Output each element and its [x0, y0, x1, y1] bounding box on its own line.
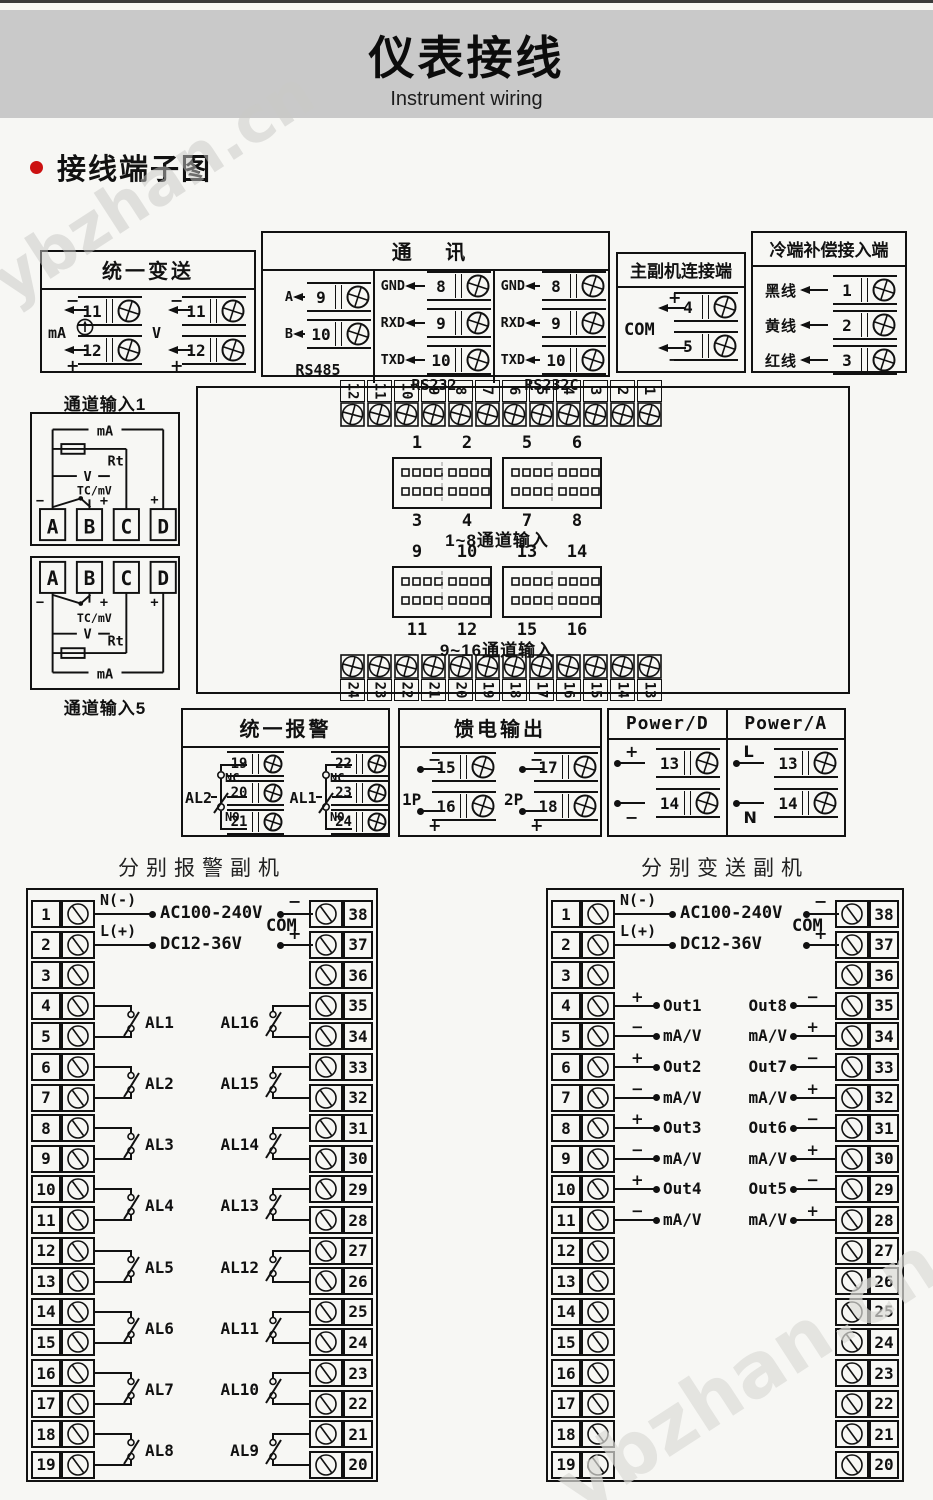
power-sign: − [625, 808, 638, 827]
plus-sign: + [806, 1018, 819, 1036]
terminal-number: 4 [551, 992, 581, 1020]
terminal-number: 3 [583, 380, 608, 402]
terminal-divider [252, 754, 259, 774]
feed-output-group: 1P − + 1516 [410, 752, 496, 840]
plus-sign: + [631, 988, 644, 1006]
signal-row: GND8 [375, 271, 493, 301]
arrow-left-icon [407, 285, 425, 287]
screw-icon [61, 1359, 95, 1387]
terminal-number: 25 [869, 1298, 899, 1326]
channel-terminal-letter: B [84, 567, 96, 590]
terminal: 18 [534, 791, 598, 821]
terminal-number: 21 [343, 1420, 373, 1448]
signal-label: TXD [495, 352, 525, 368]
socket-pins [504, 568, 600, 616]
screw-icon [581, 1053, 615, 1081]
terminal: 10 [551, 1175, 615, 1203]
alarm-label: AL6 [145, 1319, 174, 1338]
terminal: 14 [31, 1298, 95, 1326]
screw-icon [713, 334, 737, 358]
terminal: 35 [835, 992, 899, 1020]
signal-label: B [263, 326, 293, 342]
terminal-number: 3 [551, 961, 581, 989]
line-label: L(+) [100, 922, 136, 940]
wire [615, 1035, 655, 1037]
alarm-contact-pair: AL14 [179, 1114, 309, 1176]
screw-icon [61, 1084, 95, 1112]
screw-icon [581, 1359, 615, 1387]
tc-label: TC/mV [77, 611, 112, 625]
terminal: 17 [534, 752, 598, 782]
terminal-number: 10 [394, 380, 419, 402]
wire [795, 1219, 835, 1221]
top-border-line [0, 0, 933, 3]
socket-channel-number: 10 [452, 542, 482, 562]
power-sign: L [744, 742, 754, 761]
page-subtitle: Instrument wiring [0, 88, 933, 111]
terminal-number: 2 [610, 380, 635, 402]
terminal: 16 [556, 654, 581, 701]
terminal: 19 [227, 751, 284, 777]
terminal: 16 [551, 1359, 615, 1387]
terminal: 12 [340, 380, 365, 427]
terminal-number: 27 [343, 1237, 373, 1265]
screw-icon [872, 313, 896, 337]
terminal-number: 2 [837, 316, 857, 335]
plus-sign: + [100, 493, 108, 509]
terminal-number: 5 [551, 1022, 581, 1050]
terminal-divider [570, 348, 577, 372]
terminal-number: 13 [778, 754, 798, 773]
alarm-contact-pair: AL11 [179, 1298, 309, 1360]
screw-icon [61, 1053, 95, 1081]
wire [619, 802, 645, 804]
terminal-number: 33 [869, 1053, 899, 1081]
output-sub-label: mA/V [663, 1210, 702, 1229]
feed-output-block: 馈电输出 1P − + 1516 2P − + 1718 [398, 708, 602, 837]
terminal: 5 [551, 1022, 615, 1050]
block-title: 主副机连接端 [618, 254, 744, 288]
terminal: 27 [309, 1237, 373, 1265]
minus-sign: − [806, 1171, 819, 1189]
terminal-number: 1 [31, 900, 61, 928]
terminal-number: 14 [610, 679, 635, 701]
screw-icon [573, 755, 597, 779]
terminal: 21 [421, 654, 446, 701]
terminal-number: 8 [551, 1114, 581, 1142]
block-body: 1P − + 1516 2P − + 1718 [400, 748, 600, 840]
terminal: 1 [833, 275, 897, 305]
alarm-label: AL14 [220, 1135, 259, 1154]
terminal: 8 [31, 1114, 95, 1142]
screw-icon [61, 1390, 95, 1418]
screw-icon [61, 992, 95, 1020]
terminal: 7 [551, 1084, 615, 1112]
output-row: − Out8 [705, 992, 835, 1020]
unified-transmit-block: 统一变送 − mA + 1112 − V + 1112 [40, 250, 256, 373]
signal-label: RXD [375, 315, 405, 331]
terminal: 11 [78, 296, 142, 326]
terminal-number: 7 [31, 1084, 61, 1112]
terminal: 1 [551, 900, 615, 928]
screw-icon [529, 402, 554, 427]
terminal-number: 17 [31, 1390, 61, 1418]
terminal-number: 29 [869, 1175, 899, 1203]
terminal-number: 22 [869, 1390, 899, 1418]
output-row: + mA/V [705, 1145, 835, 1173]
com-label: COM [624, 320, 655, 340]
terminal-number: 1 [637, 380, 662, 402]
terminal-number: 13 [660, 754, 680, 773]
terminal-divider [684, 751, 691, 775]
channel-terminal-letter: D [157, 515, 169, 538]
terminal-number: 10 [546, 351, 566, 370]
alarm-label: AL5 [145, 1258, 174, 1277]
terminal-number: 36 [343, 961, 373, 989]
terminal-number: 6 [502, 380, 527, 402]
supply-rating: AC100-240V [680, 903, 782, 923]
screw-icon [835, 1237, 869, 1265]
terminal-number: 14 [778, 794, 798, 813]
terminal-divider [455, 348, 462, 372]
screw-icon [309, 1328, 343, 1356]
alarm-relay-group: AL1 NC NO 222324 [294, 751, 389, 843]
terminal-number: 3 [31, 961, 61, 989]
block-body: Power/D + − 1314 Power/A L N 1314 [609, 710, 844, 835]
screw-icon [61, 1237, 95, 1265]
terminal: 20 [227, 780, 284, 806]
minus-sign: − [814, 892, 827, 911]
output-row: + mA/V [705, 1084, 835, 1112]
terminal: 2 [610, 380, 635, 427]
terminal-number: 19 [31, 1451, 61, 1479]
screw-icon [581, 900, 615, 928]
terminal: 4 [674, 292, 738, 322]
terminal-number: 7 [475, 380, 500, 402]
screw-icon [835, 1359, 869, 1387]
terminal: 12 [31, 1237, 95, 1265]
terminal-number: 22 [335, 756, 352, 772]
wire [615, 913, 671, 915]
terminal-number: 19 [475, 679, 500, 701]
terminal-number: 33 [343, 1053, 373, 1081]
terminal-number: 4 [556, 380, 581, 402]
line-label: L(+) [620, 922, 656, 940]
terminal: 11 [31, 1206, 95, 1234]
terminal-number: 16 [436, 797, 456, 816]
terminal-number: 18 [538, 797, 558, 816]
terminal: 8 [551, 1114, 615, 1142]
supply-rating: DC12-36V [160, 934, 242, 954]
screw-icon [221, 338, 245, 362]
terminal-divider [335, 285, 342, 309]
terminal-number: 2 [31, 931, 61, 959]
plus-sign: + [100, 595, 108, 611]
terminal: 19 [551, 1451, 615, 1479]
alarm-label: AL3 [145, 1135, 174, 1154]
main-terminal-block: 12 11 10 9 8 7 6 5 4 3 2 1 24 23 22 21 2… [196, 386, 850, 694]
screw-icon [581, 1298, 615, 1326]
screw-icon [835, 1267, 869, 1295]
arrow-left-icon [407, 359, 425, 361]
screw-icon [61, 1175, 95, 1203]
terminal-number: 23 [343, 1359, 373, 1387]
terminal: 5 [31, 1022, 95, 1050]
screw-icon [61, 1206, 95, 1234]
terminal: 9 [421, 380, 446, 427]
terminal: 10 [394, 380, 419, 427]
terminal: 27 [835, 1237, 899, 1265]
signal-label: TXD [375, 352, 405, 368]
signal-row: RXD9 [375, 308, 493, 338]
terminal: 35 [309, 992, 373, 1020]
screw-icon [367, 754, 387, 774]
terminal-number: 21 [421, 679, 446, 701]
terminal: 28 [309, 1206, 373, 1234]
screw-icon [835, 961, 869, 989]
alarm-label: AL2 [145, 1074, 174, 1093]
screw-icon [835, 1175, 869, 1203]
wire [738, 802, 764, 804]
output-sub-label: mA/V [748, 1088, 787, 1107]
wire [795, 1005, 835, 1007]
alarm-contact-pair: AL13 [179, 1175, 309, 1237]
screw-icon [610, 654, 635, 679]
power-body: + − 1314 [609, 740, 726, 835]
socket-group-caption: 9~16通道输入 [397, 636, 597, 661]
terminal: 8 [427, 271, 491, 301]
terminal: 38 [309, 900, 373, 928]
terminal: 11 [367, 380, 392, 427]
terminal-divider [861, 278, 868, 302]
section-title: 接线端子图 [57, 146, 212, 188]
channel-terminal-letter: A [47, 515, 59, 538]
terminal: 21 [835, 1420, 899, 1448]
terminal-divider [562, 794, 569, 818]
output-type-label: mA [48, 324, 66, 342]
terminal-number: 9 [311, 288, 331, 307]
terminal-number: 15 [551, 1328, 581, 1356]
channel-terminal-letter: D [157, 567, 169, 590]
terminal: 10 [307, 319, 371, 349]
screw-icon [835, 1420, 869, 1448]
transmit-slave-block: 1234567891011121314151617181938373635343… [546, 888, 904, 1482]
terminal-divider [562, 755, 569, 779]
terminal: 15 [432, 752, 496, 782]
screw-icon [475, 402, 500, 427]
plus-sign: + [814, 924, 827, 943]
terminal-number: 10 [311, 325, 331, 344]
terminal: 19 [475, 654, 500, 701]
screw-icon [583, 402, 608, 427]
terminal: 24 [331, 809, 388, 835]
terminal: 18 [31, 1420, 95, 1448]
terminal-number: 12 [551, 1237, 581, 1265]
terminal-number: 28 [343, 1206, 373, 1234]
screw-icon [556, 402, 581, 427]
terminal: 34 [835, 1022, 899, 1050]
terminal: 14 [551, 1298, 615, 1326]
socket-channel-number: 6 [562, 433, 592, 453]
screw-icon [61, 1451, 95, 1479]
terminal: 23 [309, 1359, 373, 1387]
terminal: 6 [502, 380, 527, 427]
screw-icon [309, 961, 343, 989]
plus-sign: + [631, 1049, 644, 1067]
transmit-output-group: − V + 1112 [156, 296, 246, 374]
output-label: Out4 [663, 1179, 702, 1198]
terminal-number: 18 [551, 1420, 581, 1448]
terminal-number: 12 [82, 341, 102, 360]
terminal-number: 38 [869, 900, 899, 928]
terminal-number: 11 [82, 302, 102, 321]
block-title: 冷端补偿接入端 [753, 233, 905, 267]
terminal-number: 22 [343, 1390, 373, 1418]
screw-icon [346, 285, 370, 309]
screw-icon [581, 992, 615, 1020]
terminal: 23 [367, 654, 392, 701]
screw-icon [309, 1145, 343, 1173]
signal-label: RXD [495, 315, 525, 331]
signal-row: TXD10 [375, 345, 493, 375]
alarm-slave-title: 分别报警副机 [26, 852, 378, 882]
wire [615, 1005, 655, 1007]
terminal-number: 8 [31, 1114, 61, 1142]
terminal: 11 [551, 1206, 615, 1234]
output-sub-label: mA/V [663, 1026, 702, 1045]
socket-channel-number: 13 [512, 542, 542, 562]
terminal: 14 [774, 788, 838, 818]
screw-icon [61, 1328, 95, 1356]
wire-color-label: 黑线 [761, 280, 797, 301]
screw-icon [581, 1114, 615, 1142]
screw-icon [581, 274, 605, 298]
section-heading: 接线端子图 [30, 146, 212, 188]
supply-rating: AC100-240V [160, 903, 262, 923]
terminal-divider [455, 311, 462, 335]
terminal: 13 [551, 1267, 615, 1295]
arrow-left-icon [802, 324, 828, 326]
terminal-number: 8 [431, 277, 451, 296]
power-title: Power/D [609, 710, 726, 740]
socket-pins [504, 459, 600, 507]
terminal-number: 1 [837, 281, 857, 300]
feed-group-label: 1P [402, 790, 421, 809]
terminal-number: 7 [551, 1084, 581, 1112]
terminal: 9 [551, 1145, 615, 1173]
terminal-number: 26 [343, 1267, 373, 1295]
screw-icon [872, 278, 896, 302]
terminal: 29 [835, 1175, 899, 1203]
neutral-label: N(-) [620, 891, 656, 909]
terminal-number: 13 [31, 1267, 61, 1295]
terminal: 31 [835, 1114, 899, 1142]
screw-icon [835, 1114, 869, 1142]
alarm-label: AL9 [230, 1441, 259, 1460]
screw-icon [309, 1390, 343, 1418]
alarm-relay-group: AL2 NC NO 192021 [189, 751, 284, 843]
terminal-number: 9 [31, 1145, 61, 1173]
screw-icon [61, 1114, 95, 1142]
terminal-number: 30 [869, 1145, 899, 1173]
terminal-divider [106, 299, 113, 323]
v-label: V [83, 469, 91, 485]
output-sub-label: mA/V [748, 1210, 787, 1229]
terminal-divider [335, 322, 342, 346]
terminal: 2 [31, 931, 95, 959]
terminal-divider [460, 755, 467, 779]
terminal: 9 [31, 1145, 95, 1173]
output-label: Out7 [748, 1057, 787, 1076]
socket-channel-number: 5 [512, 433, 542, 453]
terminal-number: 16 [556, 679, 581, 701]
channel-wiring-drawing: ABCD mA Rt V TC/mV − + + [32, 558, 178, 688]
terminal: 6 [31, 1053, 95, 1081]
terminal-number: 19 [231, 756, 248, 772]
terminal: 16 [432, 791, 496, 821]
screw-icon [581, 931, 615, 959]
wire [808, 944, 839, 946]
plus-sign: + [150, 492, 158, 508]
terminal: 13 [637, 654, 662, 701]
channel-terminal-letter: B [84, 515, 96, 538]
terminal-number: 10 [551, 1175, 581, 1203]
wire [808, 913, 839, 915]
alarm-label: AL12 [220, 1258, 259, 1277]
terminal: 9 [427, 308, 491, 338]
terminal: 3 [833, 345, 897, 375]
terminal: 1 [637, 380, 662, 427]
terminal-number: 38 [343, 900, 373, 928]
plus-sign: + [150, 595, 158, 611]
terminal-divider [570, 274, 577, 298]
terminal-number: 5 [678, 337, 698, 356]
terminal: 19 [31, 1451, 95, 1479]
screw-icon [835, 931, 869, 959]
wire-row: 红线3 [761, 345, 897, 375]
arrow-left-icon [407, 322, 425, 324]
screw-icon [61, 1267, 95, 1295]
alarm-label: AL11 [220, 1319, 259, 1338]
terminal-number: 25 [343, 1298, 373, 1326]
terminal-number: 37 [869, 931, 899, 959]
terminal-number: 23 [367, 679, 392, 701]
terminal: 22 [835, 1390, 899, 1418]
terminal-number: 23 [335, 785, 352, 801]
terminal-number: 18 [502, 679, 527, 701]
minus-sign: − [631, 1080, 644, 1098]
power-body: L N 1314 [728, 740, 845, 835]
terminal: 23 [835, 1359, 899, 1387]
output-label: Out8 [748, 996, 787, 1015]
minus-sign: − [36, 595, 44, 611]
terminal: 29 [309, 1175, 373, 1203]
rt-label: Rt [107, 453, 123, 469]
terminal-divider [570, 311, 577, 335]
page-title: 仪表接线 [0, 22, 933, 88]
alarm-label: AL10 [220, 1380, 259, 1399]
wire [615, 1188, 655, 1190]
screw-icon [340, 402, 365, 427]
plus-sign: + [806, 1080, 819, 1098]
alarm-slave-block: 1234567891011121314151617181938373635343… [26, 888, 378, 1482]
supply-rating: DC12-36V [680, 934, 762, 954]
terminal-number: 24 [335, 814, 352, 830]
terminal: 13 [774, 748, 838, 778]
terminal: 26 [309, 1267, 373, 1295]
alarm-contact-pair: AL15 [179, 1053, 309, 1115]
terminal: 20 [448, 654, 473, 701]
